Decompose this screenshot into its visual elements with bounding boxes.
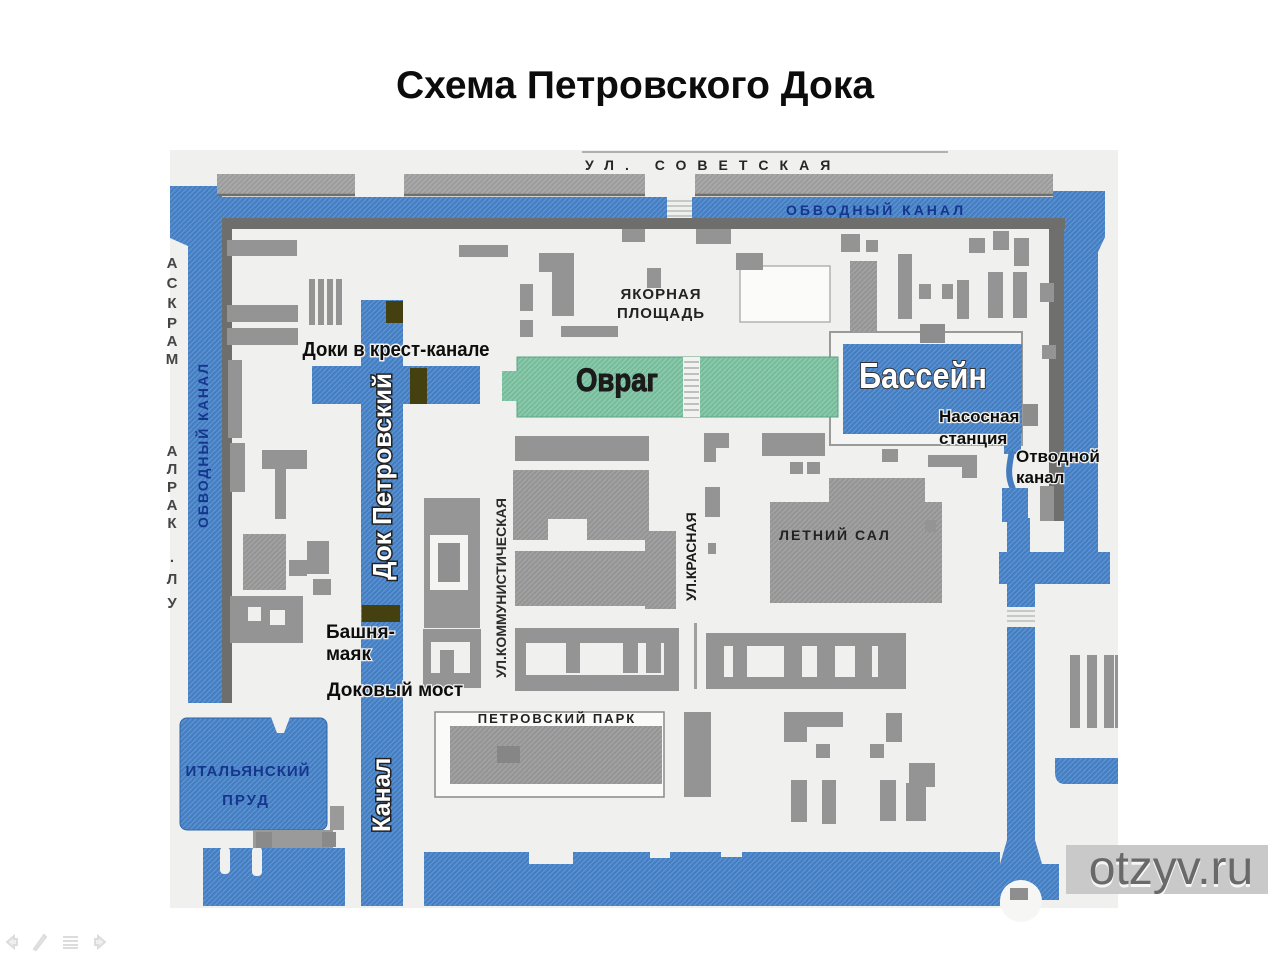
svg-text:ПЛОЩАДЬ: ПЛОЩАДЬ — [617, 305, 705, 322]
svg-text:Л: Л — [167, 461, 178, 478]
svg-text:Овраг: Овраг — [576, 362, 658, 398]
svg-text:Р: Р — [167, 315, 177, 332]
svg-text:станция: станция — [939, 429, 1007, 448]
svg-text:Л: Л — [167, 571, 178, 588]
svg-text:ПЕТРОВСКИЙ ПАРК: ПЕТРОВСКИЙ ПАРК — [478, 711, 636, 726]
svg-text:канал: канал — [1016, 468, 1065, 487]
svg-text:М: М — [166, 351, 179, 368]
svg-text:А: А — [167, 333, 178, 350]
svg-text:ИТАЛЬЯНСКИЙ: ИТАЛЬЯНСКИЙ — [186, 762, 311, 780]
svg-text:Бассейн: Бассейн — [859, 355, 987, 396]
svg-text:маяк: маяк — [326, 644, 371, 665]
svg-text:.: . — [170, 549, 174, 566]
svg-text:Доковый мост: Доковый мост — [327, 680, 463, 701]
svg-text:К: К — [167, 515, 177, 532]
svg-text:УЛ.КРАСНАЯ: УЛ.КРАСНАЯ — [683, 512, 699, 601]
svg-text:Башня-: Башня- — [326, 622, 395, 643]
svg-text:ЛЕТНИЙ САЛ: ЛЕТНИЙ САЛ — [779, 526, 891, 543]
svg-text:ОБВОДНЫЙ КАНАЛ: ОБВОДНЫЙ КАНАЛ — [194, 362, 211, 528]
svg-text:Р: Р — [167, 479, 177, 496]
svg-text:ПРУД: ПРУД — [222, 792, 270, 809]
svg-text:Канал: Канал — [368, 758, 396, 832]
svg-text:УЛ. СОВЕТСКАЯ: УЛ. СОВЕТСКАЯ — [585, 157, 841, 173]
svg-text:А: А — [167, 255, 178, 272]
svg-text:Доки в крест-канале: Доки в крест-канале — [303, 339, 490, 361]
svg-text:ЯКОРНАЯ: ЯКОРНАЯ — [620, 286, 701, 303]
svg-text:А: А — [167, 443, 178, 460]
svg-text:У: У — [167, 595, 177, 612]
svg-text:Отводной: Отводной — [1016, 447, 1100, 466]
svg-text:otzyv.ru: otzyv.ru — [1089, 842, 1253, 895]
svg-text:К: К — [167, 295, 177, 312]
svg-text:С: С — [167, 275, 178, 292]
svg-text:Схема Петровского Дока: Схема Петровского Дока — [396, 64, 874, 107]
svg-text:ОБВОДНЫЙ КАНАЛ: ОБВОДНЫЙ КАНАЛ — [786, 201, 966, 218]
svg-text:Насосная: Насосная — [939, 407, 1019, 426]
svg-text:УЛ.КОММУНИСТИЧЕСКАЯ: УЛ.КОММУНИСТИЧЕСКАЯ — [493, 498, 509, 678]
svg-text:А: А — [167, 497, 178, 514]
svg-text:Док Петровский: Док Петровский — [367, 373, 397, 580]
